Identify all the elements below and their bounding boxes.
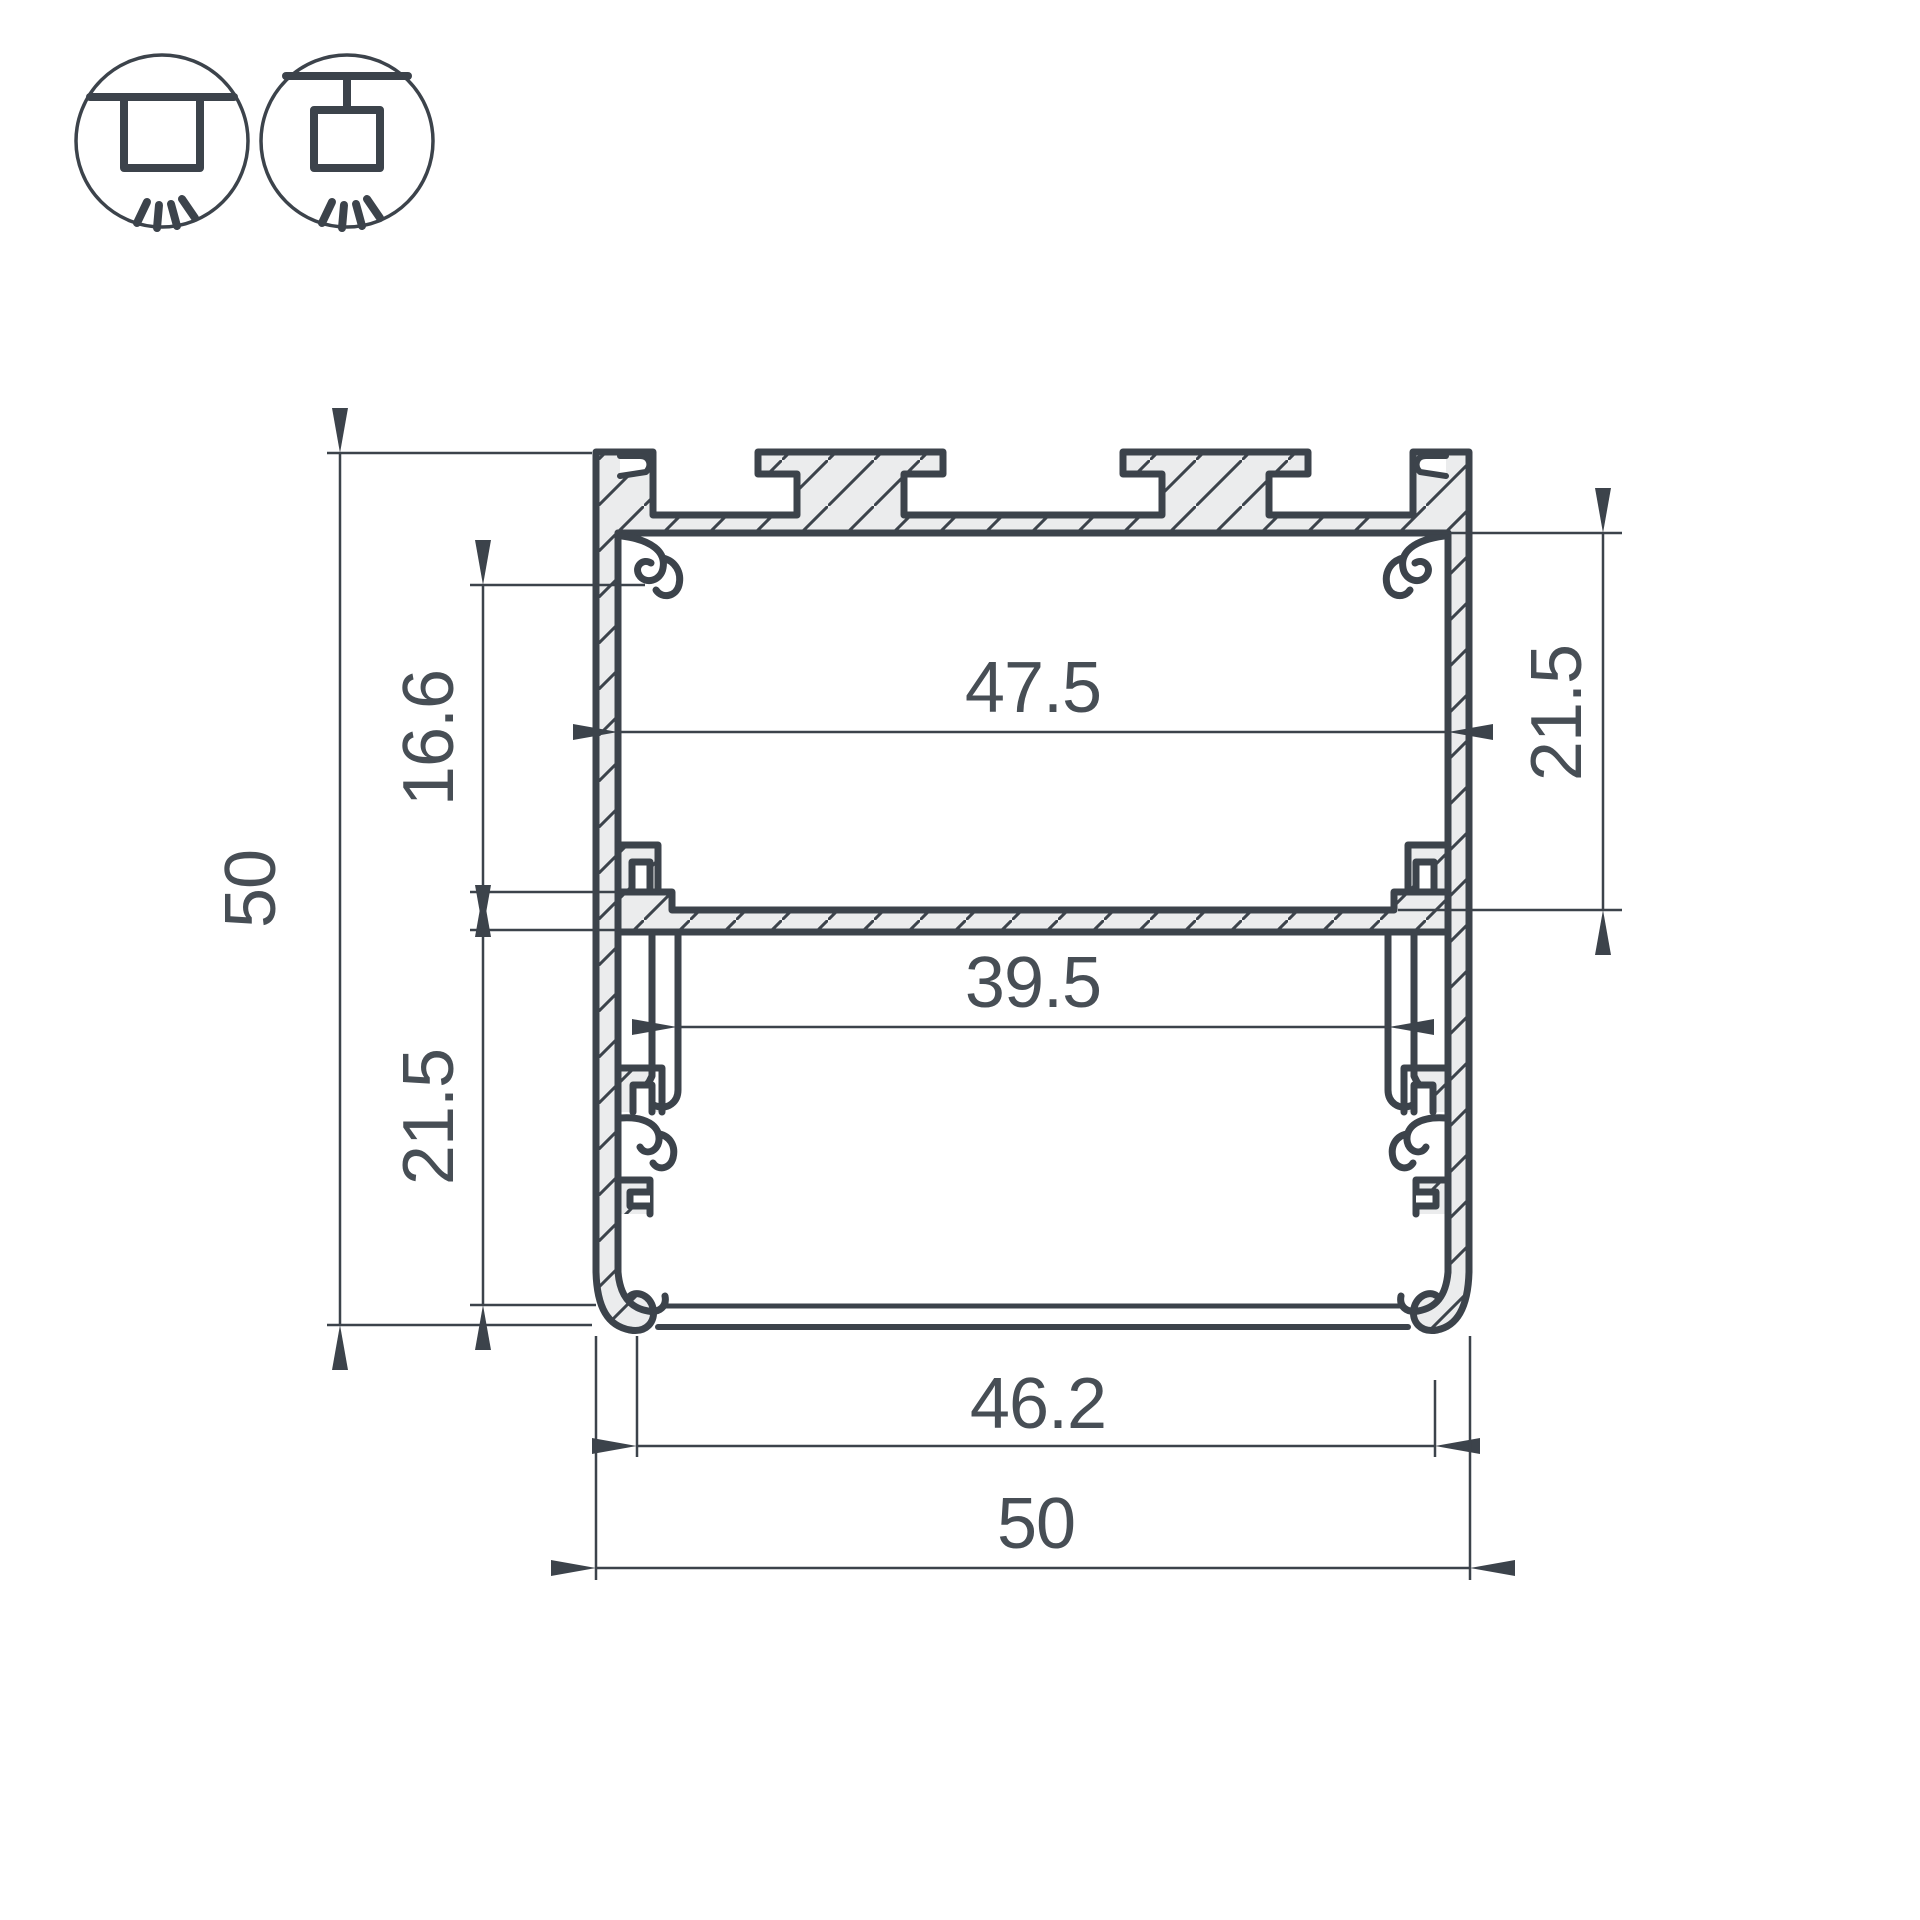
label-inner-width-lower: 39.5 — [965, 943, 1101, 1023]
label-inner-width-top: 47.5 — [965, 648, 1101, 728]
profile-top-plate-fill — [596, 452, 1469, 533]
surface-mount-icon — [76, 55, 248, 228]
surface-mount-icon-glyph — [90, 97, 234, 228]
label-lower-chamber-height: 21.5 — [389, 1049, 469, 1185]
drawing-page: 50 16.6 21.5 47.5 21.5 39.5 46.2 50 — [0, 0, 1920, 1920]
label-boss-offset: 16.6 — [389, 670, 469, 806]
surface-mount-icon-circle — [76, 55, 248, 227]
profile-metal-fills — [596, 452, 1470, 1330]
pendant-mount-icon-glyph — [286, 76, 408, 228]
dimension-labels: 50 16.6 21.5 47.5 21.5 39.5 46.2 50 — [211, 645, 1597, 1564]
profile-outlines — [596, 452, 1469, 1330]
label-upper-chamber-height: 21.5 — [1517, 645, 1597, 781]
label-overall-height: 50 — [211, 850, 291, 928]
label-overall-width: 50 — [997, 1484, 1075, 1564]
profile-outer-contour — [596, 452, 1469, 1330]
profile-drawing-canvas: 50 16.6 21.5 47.5 21.5 39.5 46.2 50 — [0, 0, 1920, 1920]
pendant-mount-icon — [261, 55, 433, 228]
label-bottom-opening-width: 46.2 — [970, 1364, 1106, 1444]
